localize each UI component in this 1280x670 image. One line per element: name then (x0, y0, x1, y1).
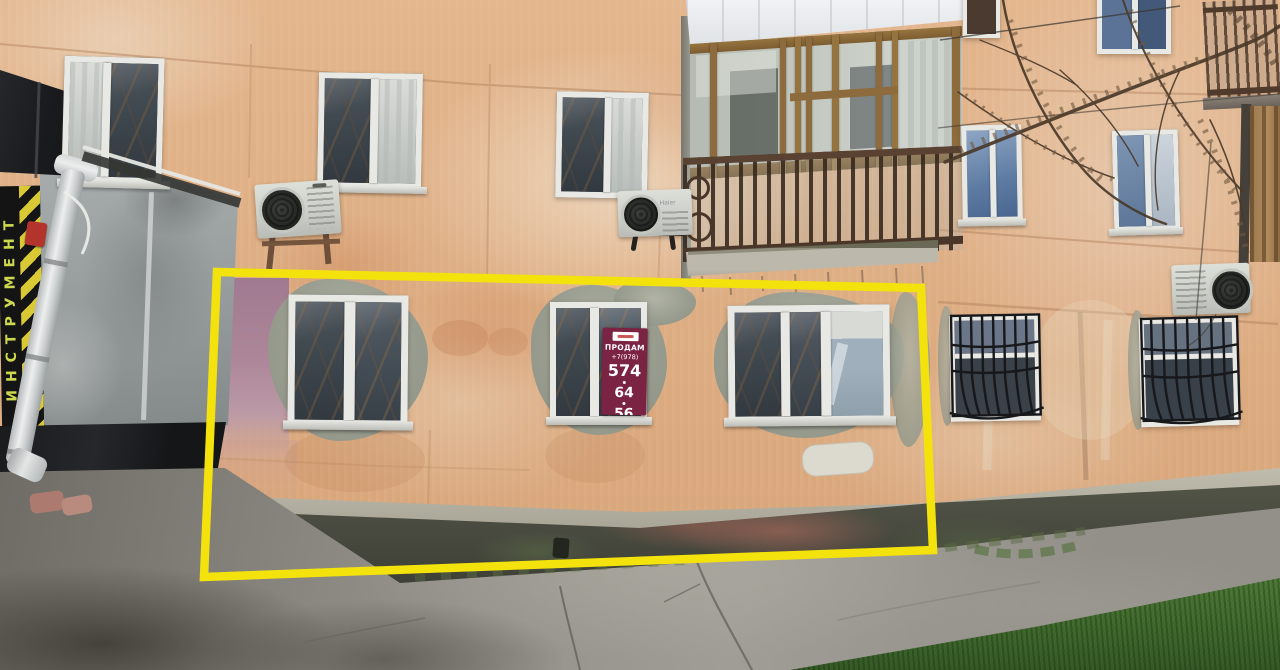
window-upper-2 (317, 72, 423, 190)
ac-unit-2: Haier (617, 189, 693, 238)
window-mullion (989, 130, 997, 217)
balcony-glass-sheen (696, 50, 776, 97)
ac-fan (1208, 268, 1254, 314)
phone-separator-dot (623, 381, 626, 384)
window-pane (323, 78, 373, 183)
ac-fan (620, 194, 661, 235)
dark-plinth-blotch (552, 537, 569, 558)
balcony-mullion (876, 31, 882, 167)
ac-unit-3 (1171, 263, 1251, 316)
window-sash-bar (955, 352, 1035, 358)
phone-separator-dot (622, 402, 625, 405)
window-pane (294, 302, 346, 420)
window-pane (1117, 135, 1148, 227)
balcony-curtain (902, 38, 954, 153)
window-upper-3 (555, 91, 649, 199)
window-right-1 (961, 124, 1023, 222)
balcony-mullion (952, 26, 960, 163)
ac-vents (662, 211, 689, 232)
photo-building-facade: ИНСТРУМЕНТ (0, 0, 1280, 670)
ac-stand-leg (323, 230, 332, 264)
window-sash-bar (1145, 353, 1233, 360)
railing-rail (1203, 4, 1278, 13)
red-marker (24, 221, 47, 248)
window-mullion (343, 302, 355, 420)
balcony-interior-shadow (850, 64, 894, 149)
ac-brand-label: Haier (660, 199, 690, 207)
window-mullion (590, 308, 599, 416)
window-pane (1102, 0, 1134, 49)
window-sill (283, 420, 413, 430)
window-pane (561, 97, 607, 192)
agency-logo-mark (617, 335, 633, 338)
window-ground-right (727, 304, 890, 423)
window-mullion (820, 312, 831, 416)
window-sill (546, 417, 652, 425)
ac-fan (257, 186, 306, 235)
window-pane (735, 312, 785, 416)
window-barred-2 (1139, 317, 1240, 428)
white-plaster-patch (801, 441, 875, 478)
window-barred-1 (949, 314, 1041, 422)
window-pane (556, 308, 592, 416)
neighbor-balcony-railing (1202, 0, 1280, 100)
window-mullion (780, 312, 790, 416)
ac-vents (307, 186, 336, 230)
balcony-mullion (832, 34, 839, 170)
window-pane (823, 311, 883, 416)
sale-sign-title: ПРОДАМ (602, 343, 647, 353)
sale-sign-phone-3: 56 (601, 407, 646, 416)
ac-unit-1 (254, 179, 342, 239)
balcony (676, 0, 968, 290)
window-pane (1134, 0, 1166, 49)
sale-sign-agency-chip (612, 332, 638, 341)
window-right-2 (1112, 129, 1181, 232)
sale-sign-phone-2: 64 (602, 386, 647, 401)
sale-sign-phone-1: 574 (602, 363, 647, 380)
ac-bracket-hook (669, 234, 676, 251)
balcony-mullion (892, 30, 898, 166)
sale-sign: ПРОДАМ +7(978) 574 64 56 (601, 328, 648, 416)
window-ground-left (287, 294, 408, 427)
ac-vents (1175, 270, 1206, 309)
neighbor-balcony-wood-frame (1250, 106, 1280, 262)
window-upper-right-cut (963, 0, 1000, 38)
ac-stand-leg (266, 234, 276, 270)
window-sill (724, 416, 896, 427)
window-sill (958, 218, 1026, 226)
window-upper-right-cut2 (1097, 0, 1171, 54)
window-mullion (1132, 0, 1138, 49)
